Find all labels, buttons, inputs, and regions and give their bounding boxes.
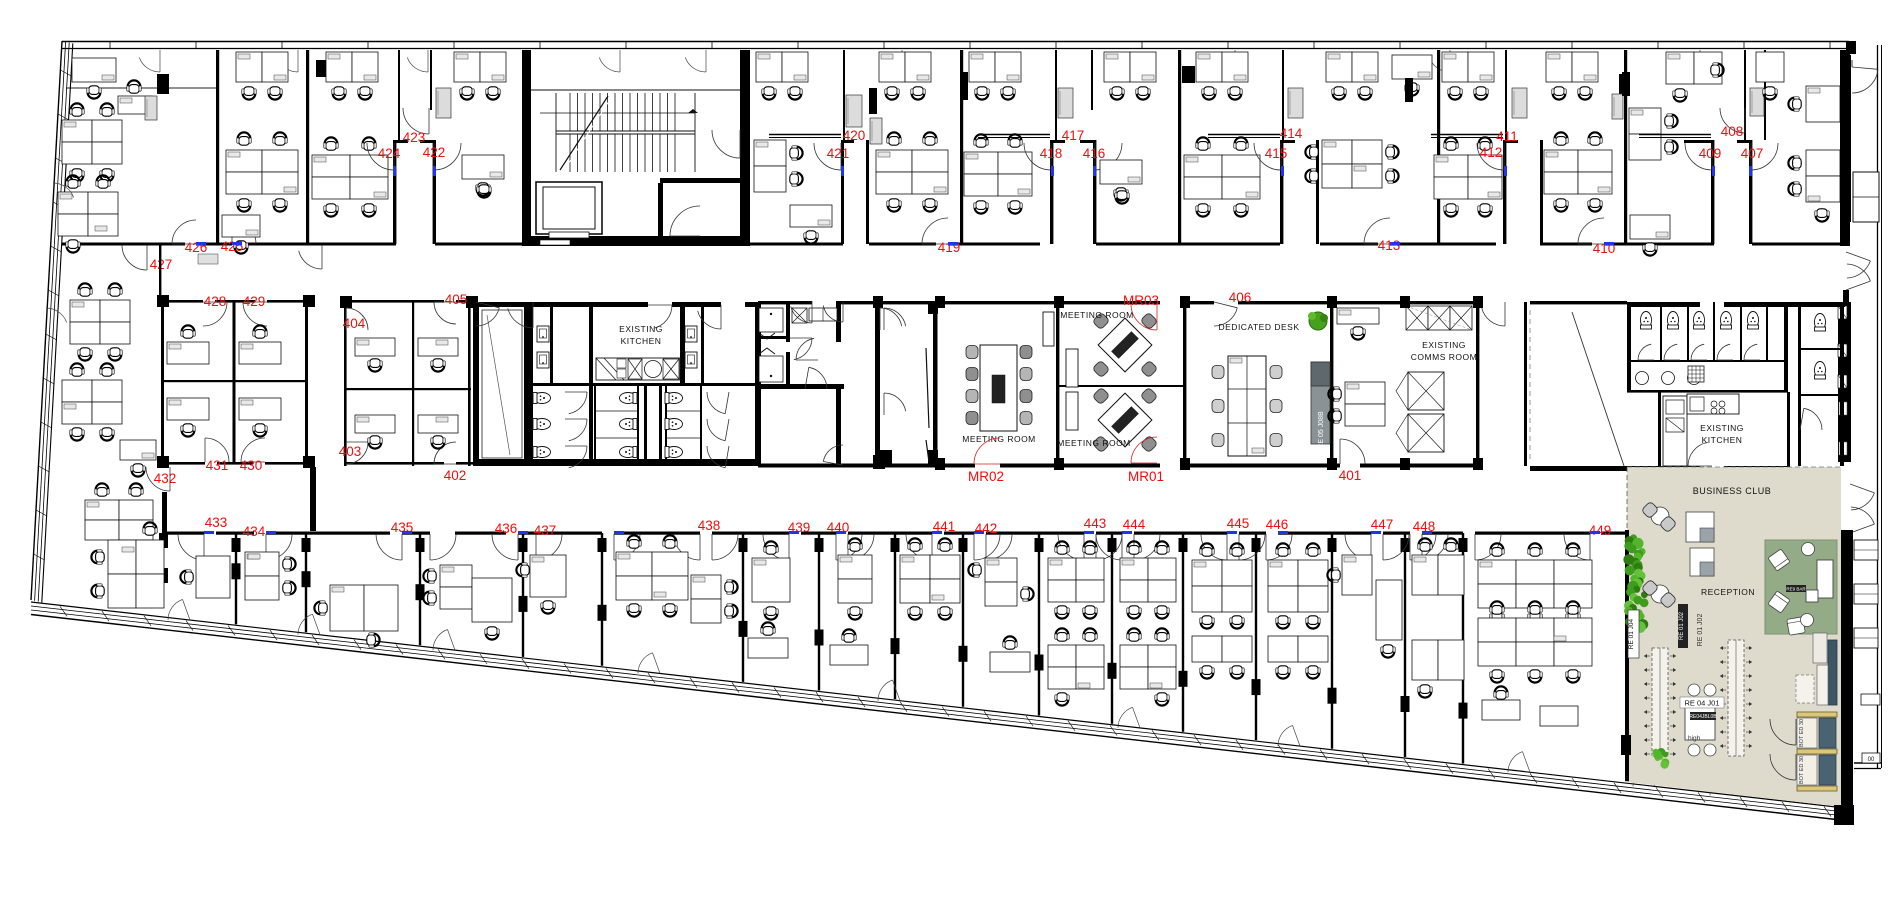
svg-text:449: 449 [1589, 523, 1612, 538]
svg-text:RE9 BAR: RE9 BAR [1786, 587, 1806, 592]
svg-text:KITCHEN: KITCHEN [1702, 435, 1743, 445]
svg-text:RE 01 J04: RE 01 J04 [1628, 618, 1635, 649]
svg-text:436: 436 [495, 521, 518, 536]
svg-text:412: 412 [1480, 145, 1503, 160]
svg-text:DEDICATED DESK: DEDICATED DESK [1219, 322, 1300, 332]
svg-text:446: 446 [1266, 517, 1289, 532]
svg-text:EXISTING: EXISTING [1700, 423, 1744, 433]
svg-text:447: 447 [1371, 517, 1394, 532]
svg-text:415: 415 [1265, 146, 1288, 161]
svg-text:417: 417 [1062, 128, 1085, 143]
svg-text:434: 434 [243, 524, 266, 539]
svg-text:BOT ED 30: BOT ED 30 [1799, 719, 1805, 747]
svg-text:RE 01 J02: RE 01 J02 [1697, 614, 1704, 647]
svg-text:438: 438 [698, 518, 721, 533]
svg-text:421: 421 [827, 146, 850, 161]
svg-text:424: 424 [378, 146, 401, 161]
svg-text:MR01: MR01 [1128, 469, 1164, 484]
svg-text:401: 401 [1339, 468, 1362, 483]
svg-text:430: 430 [240, 458, 263, 473]
svg-text:high: high [1688, 735, 1701, 742]
svg-text:EXISTING: EXISTING [1422, 340, 1466, 350]
svg-text:414: 414 [1280, 126, 1303, 141]
svg-text:COMMS ROOM: COMMS ROOM [1411, 352, 1477, 362]
svg-text:425: 425 [221, 239, 244, 254]
svg-text:420: 420 [843, 128, 866, 143]
svg-text:437: 437 [534, 523, 557, 538]
svg-text:444: 444 [1123, 517, 1146, 532]
svg-text:BOT ED 30: BOT ED 30 [1799, 756, 1805, 784]
svg-text:RECEPTION: RECEPTION [1701, 587, 1755, 597]
svg-text:416: 416 [1083, 146, 1106, 161]
svg-text:RE 01 J02: RE 01 J02 [1679, 611, 1685, 640]
svg-text:MR02: MR02 [968, 469, 1004, 484]
svg-text:RE04JBL0B: RE04JBL0B [1689, 714, 1717, 720]
svg-text:429: 429 [243, 294, 266, 309]
svg-text:MR03: MR03 [1123, 293, 1159, 308]
svg-text:MEETING ROOM: MEETING ROOM [1060, 310, 1134, 320]
svg-text:404: 404 [343, 316, 366, 331]
svg-text:432: 432 [154, 471, 177, 486]
svg-text:EXISTING: EXISTING [619, 324, 663, 334]
svg-text:408: 408 [1721, 124, 1744, 139]
svg-text:443: 443 [1084, 516, 1107, 531]
svg-text:418: 418 [1040, 146, 1063, 161]
svg-text:405: 405 [445, 292, 468, 307]
svg-text:409: 409 [1699, 146, 1722, 161]
svg-text:BUSINESS CLUB: BUSINESS CLUB [1693, 486, 1772, 496]
svg-text:MEETING ROOM: MEETING ROOM [962, 434, 1036, 444]
svg-text:433: 433 [205, 515, 228, 530]
svg-text:406: 406 [1229, 290, 1252, 305]
svg-text:RE 05 J08B: RE 05 J08B [1318, 411, 1325, 449]
svg-text:428: 428 [204, 294, 227, 309]
svg-text:413: 413 [1378, 238, 1401, 253]
svg-text:KITCHEN: KITCHEN [621, 336, 662, 346]
svg-text:403: 403 [339, 444, 362, 459]
svg-text:402: 402 [444, 468, 467, 483]
svg-text:431: 431 [206, 458, 229, 473]
svg-text:422: 422 [423, 145, 446, 160]
svg-text:445: 445 [1227, 516, 1250, 531]
svg-text:411: 411 [1496, 129, 1518, 144]
svg-text:407: 407 [1741, 146, 1764, 161]
svg-text:MEETING ROOM: MEETING ROOM [1057, 438, 1131, 448]
svg-text:423: 423 [403, 130, 426, 145]
svg-text:RE 04 J01: RE 04 J01 [1684, 699, 1719, 708]
svg-text:00: 00 [1868, 757, 1875, 763]
